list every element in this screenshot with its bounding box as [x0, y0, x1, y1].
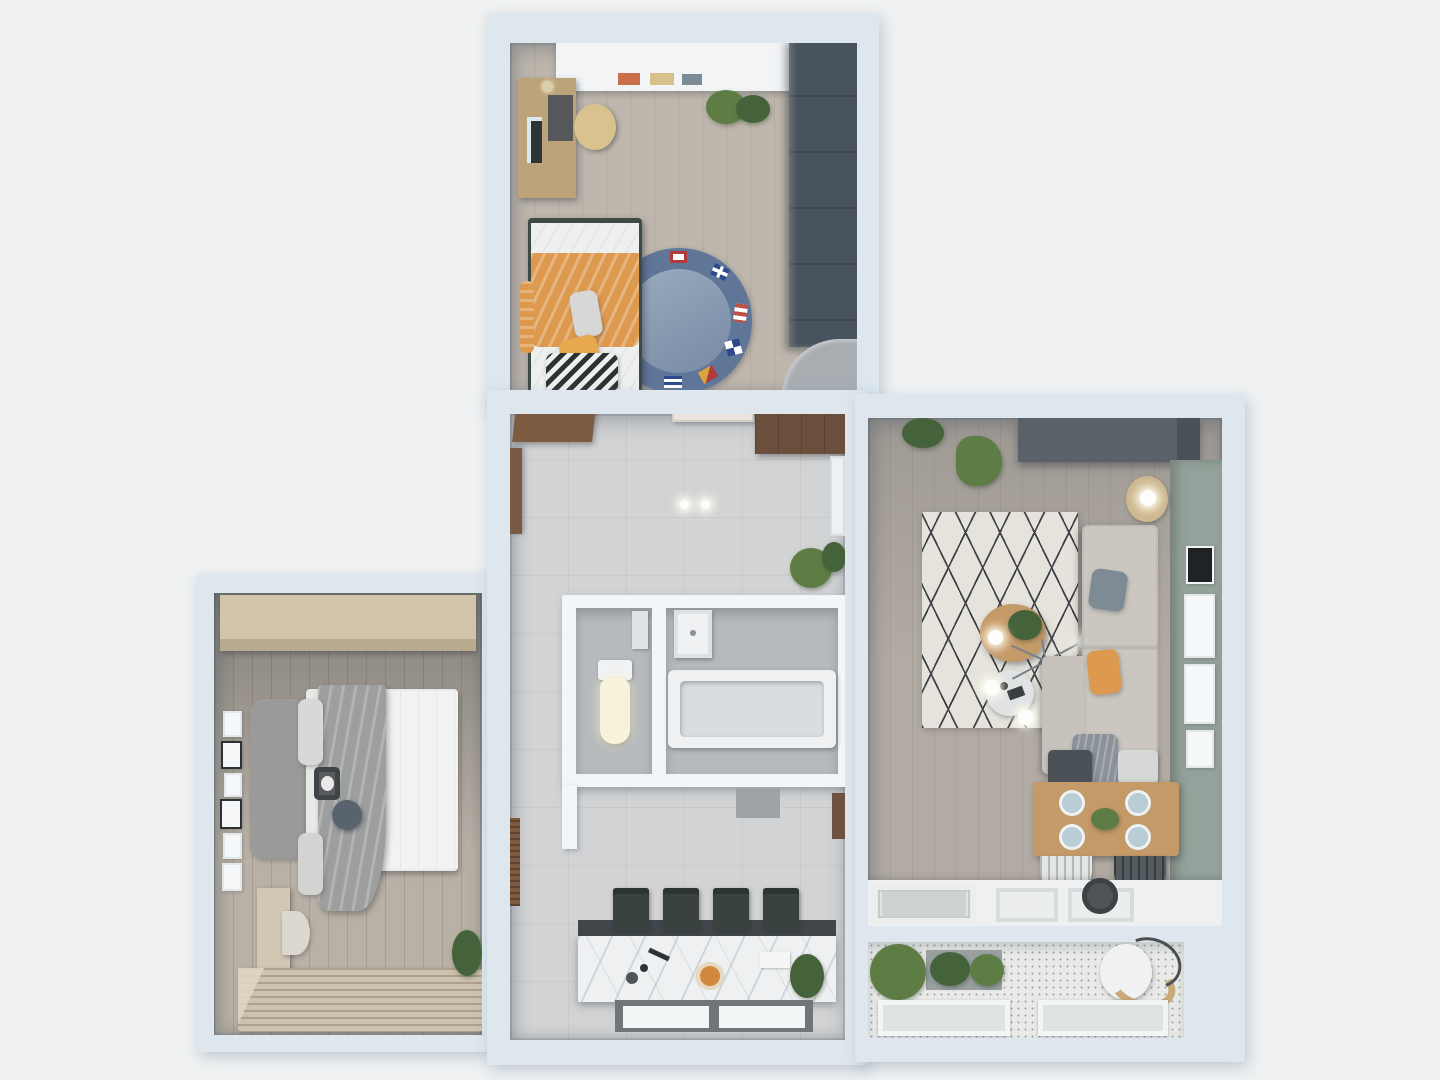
balcony-floor — [868, 942, 1184, 1038]
sofa-cushion-orange — [1086, 648, 1122, 695]
bathroom-doormat — [736, 788, 780, 818]
table-herb-centerpiece — [1091, 808, 1119, 830]
center-block — [487, 390, 868, 1065]
orange-blanket-drape — [520, 281, 534, 353]
plate — [1059, 790, 1085, 816]
boiler — [632, 611, 648, 649]
coffee-table-plant — [1008, 610, 1042, 640]
wall-frame — [1186, 546, 1214, 584]
living-grass-plant — [956, 436, 1002, 486]
hall-plant-leaves — [822, 542, 845, 572]
wall-frame — [1184, 594, 1215, 658]
ceiling-light — [701, 500, 710, 509]
flag-patch-red — [670, 251, 687, 263]
pizza-plate — [696, 962, 724, 990]
bathroom-wall-stub — [562, 785, 577, 849]
sink-basin — [882, 892, 966, 917]
pillow — [298, 699, 323, 765]
herb-plant — [930, 952, 970, 986]
rug-folded-corner — [238, 968, 294, 1032]
balcony-divider-wall — [868, 926, 1222, 942]
shelf-item — [650, 73, 674, 85]
dining-chair-dark — [1048, 750, 1092, 786]
island-bottle — [626, 972, 638, 984]
bar-stool — [763, 888, 799, 930]
tv-unit — [1018, 418, 1200, 462]
wall-shelf — [556, 43, 794, 91]
bathroom-unit — [562, 595, 845, 787]
bedroom-plant — [452, 930, 482, 976]
flag-patch-cross — [710, 263, 730, 281]
balcony-right-wall — [1184, 926, 1222, 1038]
dark-wardrobe — [789, 43, 857, 347]
bath-room-floor — [666, 608, 838, 774]
flag-patch-stripes — [733, 303, 748, 323]
shelf-item — [682, 74, 702, 85]
side-table-cup — [1000, 682, 1008, 690]
panda-face — [321, 776, 334, 791]
bathtub — [668, 670, 836, 748]
master-bedroom-block — [196, 574, 498, 1052]
tan-wardrobe — [220, 595, 476, 651]
desk-lamp — [542, 81, 553, 92]
plate — [1059, 824, 1085, 850]
wall-frame — [1184, 664, 1215, 724]
island-plant — [790, 954, 824, 998]
picture-frame — [223, 711, 242, 737]
living-room-floor — [868, 418, 1222, 1038]
sink-drain — [690, 630, 696, 636]
bathroom-sink — [674, 610, 712, 658]
living-block — [855, 394, 1245, 1062]
hallway-floor — [510, 414, 845, 1040]
picture-frame — [220, 799, 242, 829]
chandelier-bulb — [984, 680, 999, 695]
flag-patch-blue-stripes — [664, 376, 682, 388]
picture-frame — [223, 833, 242, 859]
floor-lamp — [1126, 476, 1168, 522]
corner-desk — [782, 339, 857, 395]
living-plant — [902, 418, 944, 448]
balcony-window — [1038, 1000, 1168, 1036]
pillow — [298, 833, 323, 895]
chandelier-bulb — [988, 630, 1003, 645]
picture-frame — [224, 773, 242, 797]
island-knife — [648, 948, 670, 962]
entry-door — [672, 414, 754, 422]
bathtub-basin — [680, 681, 824, 737]
herb-plant — [970, 954, 1004, 986]
round-pillow — [332, 800, 362, 830]
kids-bedroom-floor — [510, 43, 857, 395]
marble-island — [578, 936, 836, 1002]
kitchen-window — [615, 1000, 813, 1032]
hall-door-right — [830, 456, 845, 536]
desk-pad — [548, 95, 573, 141]
dining-chair-light — [1118, 750, 1158, 784]
side-table-magazine — [1007, 686, 1025, 701]
counter-pot — [1082, 878, 1118, 914]
tv-unit-end — [1177, 418, 1200, 462]
window-pane — [719, 1006, 805, 1028]
bar-stool — [663, 888, 699, 930]
master-bedroom-floor — [214, 593, 482, 1035]
counter-hob — [996, 888, 1058, 922]
kids-room-plant-leaves — [736, 95, 770, 123]
wc-room-floor — [576, 608, 652, 774]
shoe-bench — [512, 414, 596, 442]
flag-patch-checker — [724, 338, 742, 356]
dresser-chair — [282, 911, 310, 955]
wall-frame — [1186, 730, 1214, 768]
floorplan-scene — [0, 0, 1440, 1080]
plate — [1125, 824, 1151, 850]
balcony-window — [878, 1000, 1010, 1036]
desk-chair — [574, 104, 616, 150]
kids-bedroom-block — [487, 13, 879, 413]
toilet-bowl — [600, 678, 630, 744]
wall-cabinet-left — [510, 448, 522, 534]
dining-table — [1033, 782, 1179, 856]
chandelier-bulb — [1018, 710, 1033, 725]
white-duvet — [382, 691, 458, 869]
floor-lamp-bulb — [1140, 490, 1156, 506]
shelf-item — [618, 73, 640, 85]
chevron-pillow — [546, 353, 618, 393]
counter-sink — [872, 884, 976, 924]
bar-stool — [713, 888, 749, 930]
ceiling-light — [680, 500, 689, 509]
picture-frame — [221, 741, 242, 769]
nautical-rug-center — [627, 269, 731, 373]
sofa-cushion-gray — [1087, 568, 1128, 613]
desk-monitor — [527, 117, 542, 163]
island-tray — [760, 952, 790, 968]
kitchen-wall-panel — [510, 818, 520, 906]
island-cup — [640, 964, 648, 972]
kitchen-door-right — [832, 793, 845, 839]
window-pane — [623, 1006, 709, 1028]
toilet-tank — [598, 660, 632, 680]
panda-pillow — [314, 767, 340, 800]
plate — [1125, 790, 1151, 816]
hall-wardrobe — [755, 414, 845, 454]
herb-plant — [870, 944, 926, 1000]
picture-frame — [222, 863, 242, 891]
bar-stool — [613, 888, 649, 930]
